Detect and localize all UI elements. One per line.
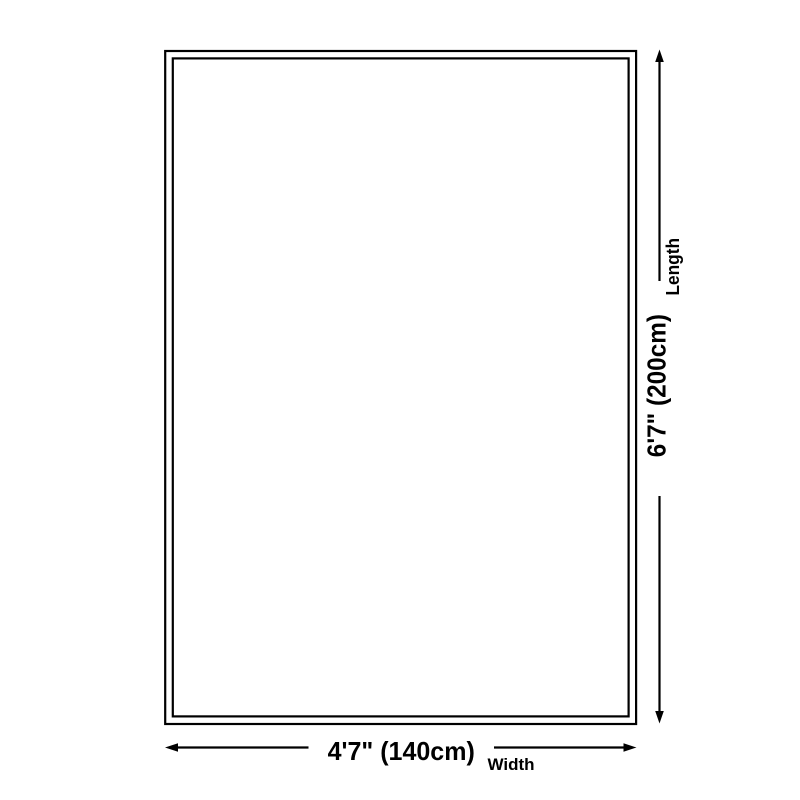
svg-text:Width: Width [488,755,535,774]
svg-text:Length: Length [663,238,683,296]
svg-text:4'7" (140cm): 4'7" (140cm) [328,736,475,766]
svg-text:6'7" (200cm): 6'7" (200cm) [642,314,672,457]
